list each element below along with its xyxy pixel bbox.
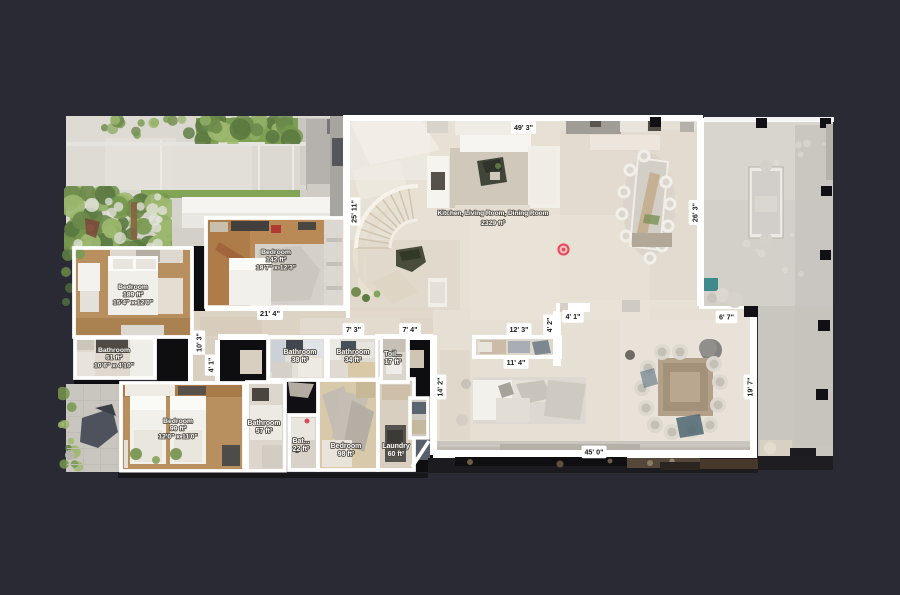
svg-text:34 ft²: 34 ft² <box>345 357 362 364</box>
svg-text:45' 0": 45' 0" <box>584 448 603 457</box>
svg-text:12' 3": 12' 3" <box>509 325 528 334</box>
svg-text:57 ft²: 57 ft² <box>256 428 273 435</box>
svg-text:189 ft²: 189 ft² <box>123 292 144 299</box>
svg-text:Bathroom: Bathroom <box>336 349 369 356</box>
svg-text:10' 3": 10' 3" <box>197 333 204 352</box>
svg-text:51 ft²: 51 ft² <box>106 355 123 362</box>
svg-text:7' 3": 7' 3" <box>346 325 361 334</box>
svg-text:25' 11": 25' 11" <box>350 200 359 223</box>
svg-text:12'0" x 11'0": 12'0" x 11'0" <box>158 433 198 440</box>
svg-text:Bedroom: Bedroom <box>118 284 148 291</box>
svg-text:4' 2": 4' 2" <box>547 318 554 333</box>
svg-text:4' 1": 4' 1" <box>565 312 580 321</box>
svg-text:19' 7": 19' 7" <box>746 377 755 396</box>
svg-text:Laundry: Laundry <box>382 443 410 450</box>
svg-text:Bat...: Bat... <box>292 438 309 445</box>
svg-text:17 ft²: 17 ft² <box>385 359 402 366</box>
svg-text:99 ft²: 99 ft² <box>170 426 187 433</box>
svg-text:Bedroom: Bedroom <box>261 249 291 256</box>
svg-text:38 ft²: 38 ft² <box>292 357 309 364</box>
svg-text:Bathroom: Bathroom <box>283 349 316 356</box>
svg-text:10'6" x 4'10": 10'6" x 4'10" <box>94 362 134 369</box>
svg-text:60 ft²: 60 ft² <box>388 451 405 458</box>
svg-text:26' 3": 26' 3" <box>691 203 700 222</box>
svg-text:98 ft²: 98 ft² <box>338 451 355 458</box>
svg-text:Bedroom: Bedroom <box>331 443 362 450</box>
svg-text:Bedroom: Bedroom <box>163 418 193 425</box>
svg-text:14' 2": 14' 2" <box>436 377 445 396</box>
svg-text:22 ft²: 22 ft² <box>293 446 310 453</box>
svg-text:6' 7": 6' 7" <box>719 313 734 322</box>
svg-text:142 ft²: 142 ft² <box>266 257 287 264</box>
svg-text:2329 ft²: 2329 ft² <box>481 220 506 227</box>
svg-text:21' 4": 21' 4" <box>260 309 281 318</box>
svg-text:7' 4": 7' 4" <box>402 325 417 334</box>
svg-text:18'7" x 12'3": 18'7" x 12'3" <box>256 264 296 271</box>
svg-text:Bathroom: Bathroom <box>247 420 280 427</box>
svg-text:Bathroom: Bathroom <box>98 347 130 354</box>
svg-text:15'4" x 12'0": 15'4" x 12'0" <box>113 299 153 306</box>
svg-text:4' 1": 4' 1" <box>209 358 216 373</box>
svg-text:Toil...: Toil... <box>384 351 402 358</box>
svg-text:49' 3": 49' 3" <box>514 123 533 132</box>
svg-text:11' 4": 11' 4" <box>507 358 526 367</box>
svg-text:Kitchen, Living Room, Dining R: Kitchen, Living Room, Dining Room <box>438 210 549 217</box>
